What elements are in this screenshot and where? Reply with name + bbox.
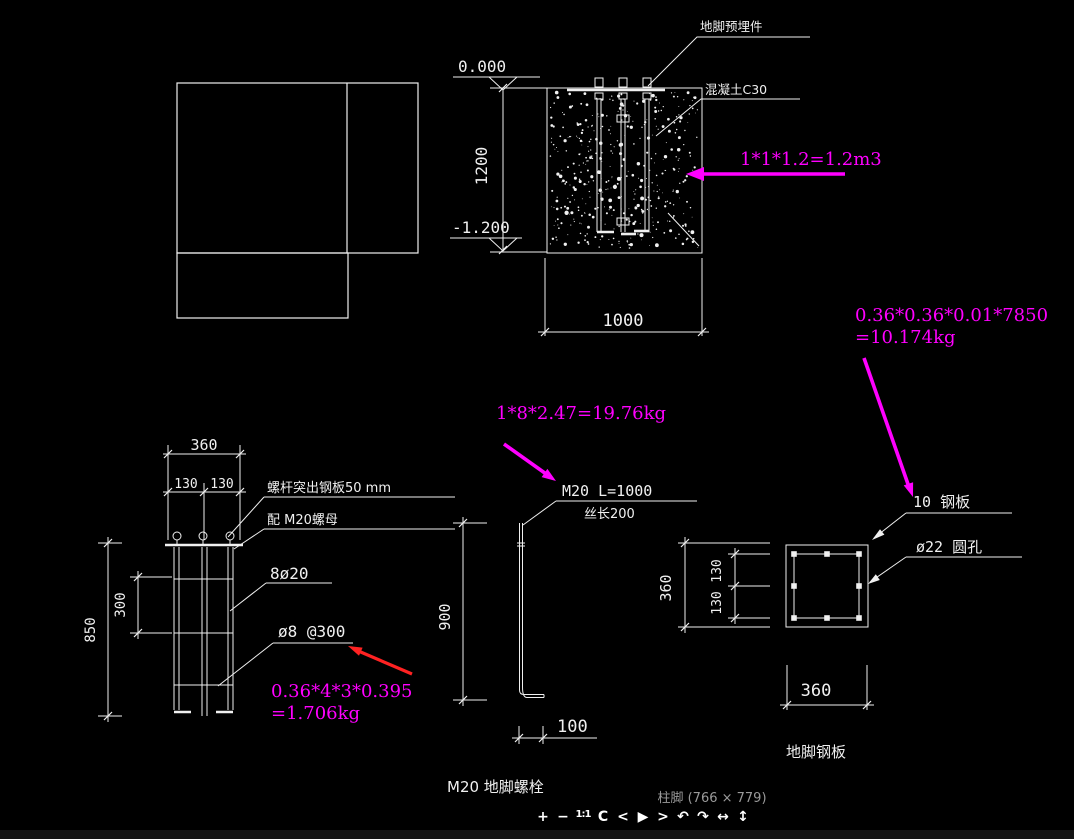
elevation-bottom: -1.200 [450, 218, 547, 252]
bolt-spec-text: M20 L=1000 [562, 482, 652, 500]
dim-width-1000: 1000 [538, 258, 709, 336]
plate-holes [791, 551, 862, 621]
cage-dim-360-text: 360 [190, 436, 217, 454]
bolt-caption: M20 地脚螺栓 [447, 778, 544, 796]
protrude-label: 螺杆突出钢板50 mm [267, 480, 391, 496]
concrete-label: 混凝土C30 [705, 82, 767, 97]
plan-view [177, 83, 418, 318]
calc-concrete-volume: 1*1*1.2=1.2m3 [740, 149, 882, 170]
plate-dim-130-130: 130 130 [710, 548, 770, 624]
plate-dim-360-left-text: 360 [657, 574, 675, 601]
plate-label-holes: ø22 圆孔 [868, 538, 1022, 584]
plate-label-thickness: 10 钢板 [872, 493, 1012, 540]
level-top-text: 0.000 [458, 57, 506, 76]
bottom-strip [0, 830, 1074, 839]
calc-plate-weight-1: 0.36*0.36*0.01*7850 [855, 305, 1048, 326]
magenta-arrowhead-down [904, 482, 913, 497]
annotation-plate-weight: 0.36*0.36*0.01*7850 =10.174kg [855, 305, 1048, 497]
plate-dim-130-bottom-text: 130 [710, 591, 725, 614]
elevation-top: 0.000 [453, 57, 547, 90]
leader-embed-part: 地脚预埋件 [648, 19, 810, 86]
bolt-dim-100: 100 [512, 717, 597, 744]
plate-dim-360-left: 360 [657, 537, 770, 633]
cage-label-nut: 配 M20螺母 [234, 513, 455, 549]
plate-dim-360-bottom: 360 [780, 665, 874, 710]
viewer-image-title: 柱脚 (766 × 779) [612, 787, 812, 806]
cad-image[interactable]: 0.000 -1.200 1200 1000 地脚 [0, 0, 1074, 839]
bolt-label-spec: M20 L=1000 丝长200 [523, 482, 697, 525]
annotation-stirrup-weight: 0.36*4*3*0.395 =1.706kg [271, 646, 413, 724]
red-arrowhead [348, 646, 363, 656]
main-bars-label: 8ø20 [270, 564, 309, 583]
annotation-bolts-weight: 1*8*2.47=19.76kg [496, 403, 666, 481]
cage-label-protrude: 螺杆突出钢板50 mm [228, 480, 455, 537]
cage-dim-130-left: 130 [174, 477, 197, 492]
nut-label: 配 M20螺母 [267, 513, 338, 528]
dim-width-text: 1000 [603, 311, 644, 331]
cage-dim-850: 850 [83, 537, 122, 722]
anchor-bolt-detail: 900 100 M20 L=1000 丝长200 M20 地脚螺栓 [436, 482, 697, 796]
bolt-dim-900: 900 [436, 517, 487, 706]
cage-dim-130-right: 130 [210, 477, 233, 492]
rebar-cage-detail: 360 130 130 300 850 螺杆突出钢板50 mm [83, 436, 455, 722]
calc-bolts-weight: 1*8*2.47=19.76kg [496, 403, 666, 424]
foundation-section: 0.000 -1.200 1200 1000 地脚 [450, 19, 810, 336]
plate-dim-360-bottom-text: 360 [801, 681, 832, 701]
level-bottom-text: -1.200 [452, 218, 510, 237]
bolt-dim-900-text: 900 [436, 603, 454, 630]
calc-stirrup-weight-1: 0.36*4*3*0.395 [271, 681, 413, 702]
cage-dim-300-text: 300 [113, 592, 129, 617]
embed-part-label: 地脚预埋件 [700, 19, 763, 34]
bolt-thread-text: 丝长200 [584, 507, 635, 522]
calc-plate-weight-2: =10.174kg [855, 327, 956, 348]
bolt-dim-100-text: 100 [557, 717, 588, 737]
magenta-arrowhead-left [686, 167, 704, 181]
plate-dim-130-top-text: 130 [710, 559, 725, 582]
leader-arrowhead [868, 574, 880, 584]
calc-stirrup-weight-2: =1.706kg [271, 703, 360, 724]
leader-concrete: 混凝土C30 [656, 82, 800, 136]
annotation-concrete-volume: 1*1*1.2=1.2m3 [686, 149, 882, 181]
cage-label-stirrups: ø8 @300 [218, 622, 353, 686]
base-plate-detail: 360 130 130 10 钢板 ø22 圆孔 [657, 493, 1022, 761]
stirrups-label: ø8 @300 [278, 622, 345, 641]
plate-caption: 地脚钢板 [786, 743, 846, 761]
cage-dim-850-text: 850 [83, 617, 99, 642]
plate-holes-text: ø22 圆孔 [916, 538, 982, 556]
cage-dim-300: 300 [113, 571, 172, 639]
dim-depth-text: 1200 [472, 147, 491, 186]
plate-thickness-text: 10 钢板 [913, 493, 970, 511]
cage-label-main-bars: 8ø20 [230, 564, 332, 611]
